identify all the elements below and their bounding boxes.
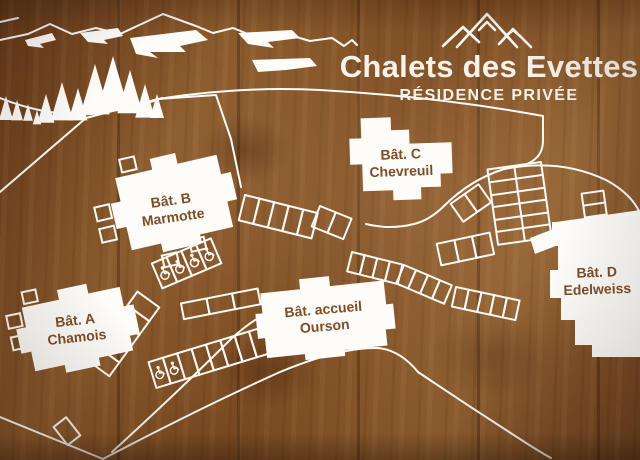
parking-band-curved-1 bbox=[347, 252, 402, 284]
building-label-d: Bât. D Edelweiss bbox=[536, 262, 640, 300]
snow-patches bbox=[25, 28, 317, 72]
accessible-parking-row-south bbox=[149, 327, 272, 388]
snow-patch bbox=[25, 33, 56, 48]
parking-grid-right bbox=[487, 162, 551, 245]
parking-space bbox=[503, 298, 520, 320]
parking-space bbox=[432, 280, 452, 303]
sign-title: Chalets des Evettes bbox=[333, 49, 640, 85]
balcony-outline bbox=[94, 204, 112, 221]
balcony-outline bbox=[22, 289, 38, 304]
snow-patch bbox=[130, 30, 208, 58]
building-label-c: Bât. C Chevreuil bbox=[340, 144, 461, 182]
parking-row-mid-south bbox=[181, 289, 261, 320]
road-right-sweep bbox=[504, 165, 639, 211]
pine-trees bbox=[0, 56, 164, 124]
parking-band-curved-2 bbox=[396, 265, 452, 304]
parking-band-curved-3 bbox=[452, 287, 520, 320]
parking-row-near-c bbox=[239, 195, 318, 238]
pine-tree-icon bbox=[51, 82, 73, 120]
parking-row-near-c-tail bbox=[312, 206, 352, 239]
balcony-outline bbox=[162, 252, 179, 267]
snow-patch bbox=[238, 30, 300, 48]
parking-space bbox=[297, 210, 318, 239]
wood-sign-board: Chalets des Evettes RÉSIDENCE PRIVÉE Bât… bbox=[0, 0, 640, 460]
building-d-annex bbox=[530, 228, 561, 254]
parking-space bbox=[181, 298, 210, 319]
parking-strip-below-grid bbox=[437, 233, 494, 266]
snow-patch bbox=[252, 58, 317, 72]
parking-space bbox=[328, 212, 352, 239]
sign-subtitle: RÉSIDENCE PRIVÉE bbox=[333, 87, 640, 105]
parking-space bbox=[207, 293, 236, 314]
wheelchair-icon bbox=[153, 365, 165, 380]
parking-strip-diagonal-right bbox=[451, 184, 491, 222]
wheelchair-icon bbox=[187, 252, 201, 268]
mountains-icon bbox=[443, 14, 531, 47]
corner-sketch-line bbox=[0, 18, 18, 22]
parking-space bbox=[472, 233, 494, 258]
building-d-name: Edelweiss bbox=[537, 279, 640, 300]
road-lower-arc bbox=[103, 348, 551, 459]
wheelchair-icon bbox=[168, 360, 180, 375]
parking-space bbox=[465, 184, 492, 212]
balcony-outline bbox=[119, 156, 137, 172]
road-bottom-left bbox=[0, 417, 103, 459]
